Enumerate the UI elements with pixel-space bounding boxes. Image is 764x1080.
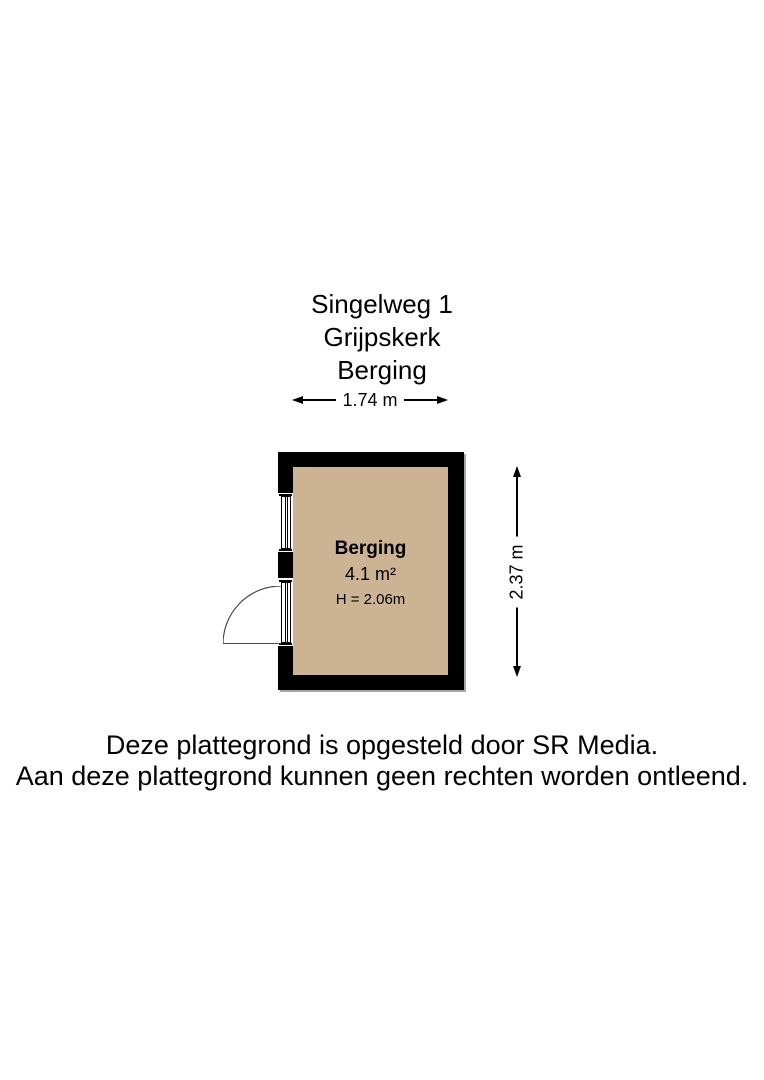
door-frame (281, 582, 291, 643)
height-dimension-label: 2.37 m (507, 536, 528, 607)
arrow-right-icon (437, 396, 448, 404)
arrow-left-icon (292, 396, 303, 404)
width-dimension-label: 1.74 m (336, 390, 403, 411)
room-name: Berging (293, 537, 448, 560)
height-dimension: 2.37 m (507, 466, 527, 677)
width-dimension: 1.74 m (292, 391, 448, 409)
room-ceiling-height: H = 2.06m (293, 589, 448, 611)
title-block: Singelweg 1 Grijpskerk Berging (0, 288, 764, 387)
title-city: Grijpskerk (0, 321, 764, 354)
window-tick-bottom (279, 549, 292, 551)
room-area: 4.1 m² (293, 563, 448, 586)
door-swing-arc (223, 586, 281, 644)
window-frame (281, 496, 291, 549)
title-plan-name: Berging (0, 354, 764, 387)
floorplan-page: Singelweg 1 Grijpskerk Berging 1.74 m Be… (0, 0, 764, 1080)
title-address: Singelweg 1 (0, 288, 764, 321)
arrow-up-icon (513, 466, 521, 477)
room-label: Berging 4.1 m² H = 2.06m (293, 537, 448, 611)
disclaimer-line1: Deze plattegrond is opgesteld door SR Me… (0, 730, 764, 761)
disclaimer-line2: Aan deze plattegrond kunnen geen rechten… (0, 761, 764, 792)
disclaimer: Deze plattegrond is opgesteld door SR Me… (0, 730, 764, 792)
arrow-down-icon (513, 666, 521, 677)
door-leaf (223, 643, 281, 644)
